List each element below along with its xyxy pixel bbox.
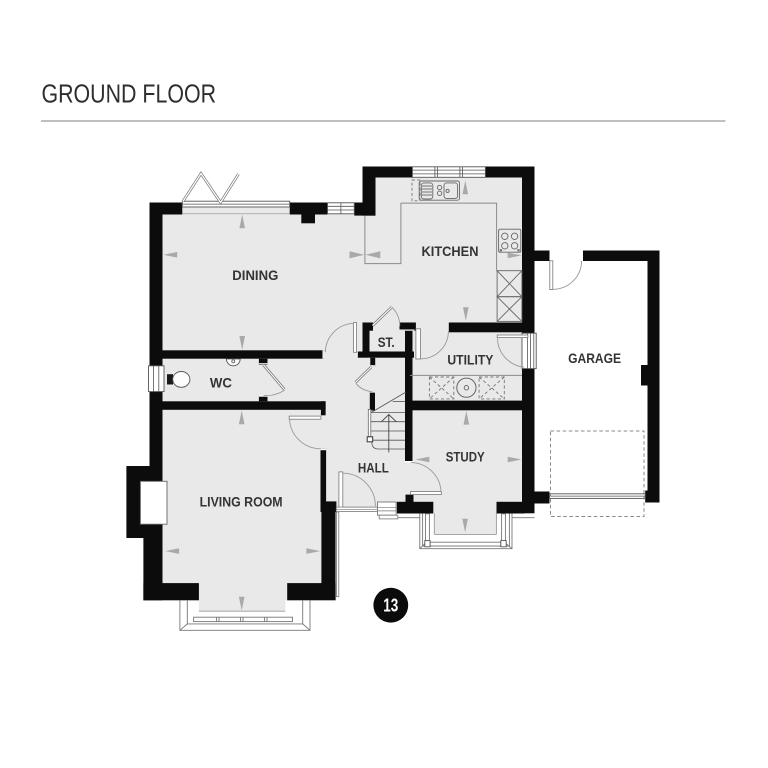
svg-text:LIVING ROOM: LIVING ROOM (200, 495, 283, 510)
svg-text:DINING: DINING (232, 268, 278, 283)
svg-text:WC: WC (210, 375, 232, 390)
svg-text:HALL: HALL (358, 460, 389, 475)
svg-text:ST.: ST. (378, 335, 395, 350)
svg-text:GROUND FLOOR: GROUND FLOOR (42, 81, 217, 109)
svg-text:GARAGE: GARAGE (568, 351, 621, 366)
svg-text:UTILITY: UTILITY (447, 352, 493, 367)
svg-text:13: 13 (383, 596, 398, 616)
svg-text:STUDY: STUDY (446, 450, 485, 465)
svg-text:KITCHEN: KITCHEN (422, 244, 479, 259)
